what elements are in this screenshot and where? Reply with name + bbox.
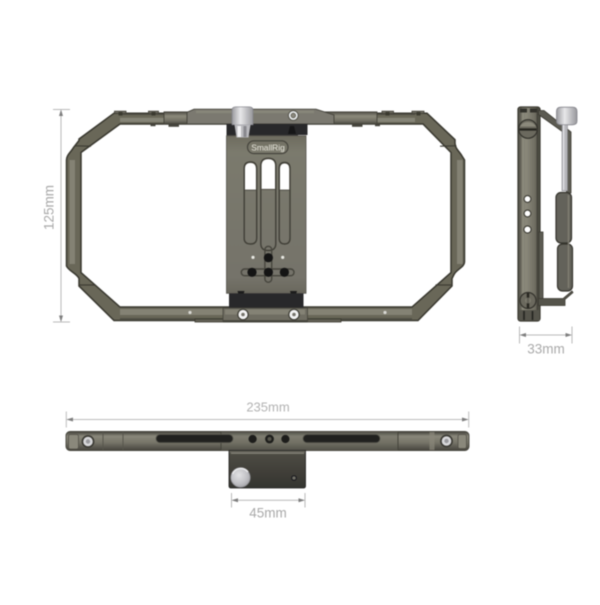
svg-text:33mm: 33mm (527, 342, 565, 357)
svg-text:SmallRig: SmallRig (251, 143, 285, 153)
svg-text:235mm: 235mm (246, 399, 289, 414)
svg-text:45mm: 45mm (249, 506, 287, 521)
svg-text:125mm: 125mm (42, 185, 57, 230)
